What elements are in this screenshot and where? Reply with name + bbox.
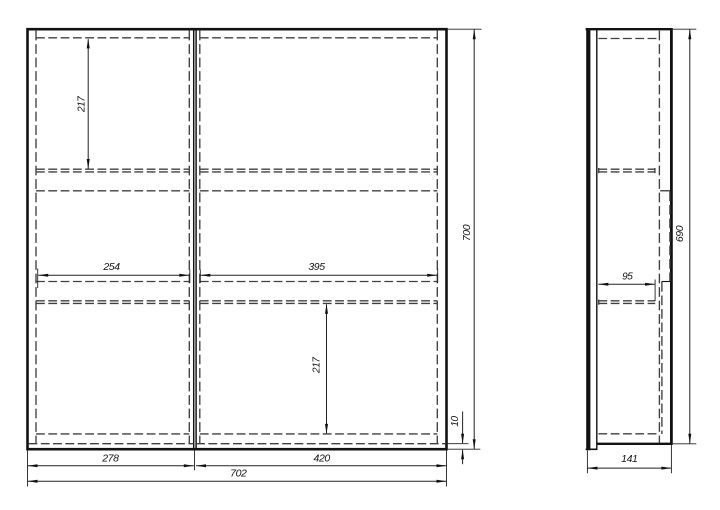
svg-text:254: 254 [102,261,120,273]
svg-text:702: 702 [230,467,247,479]
svg-text:141: 141 [621,453,637,465]
svg-text:395: 395 [308,261,325,273]
svg-text:690: 690 [674,225,686,242]
svg-text:217: 217 [311,357,322,374]
svg-text:278: 278 [101,452,119,464]
svg-text:700: 700 [461,224,473,241]
svg-text:217: 217 [76,96,87,113]
svg-text:420: 420 [314,452,331,464]
svg-text:95: 95 [622,272,633,283]
svg-text:10: 10 [450,416,461,427]
